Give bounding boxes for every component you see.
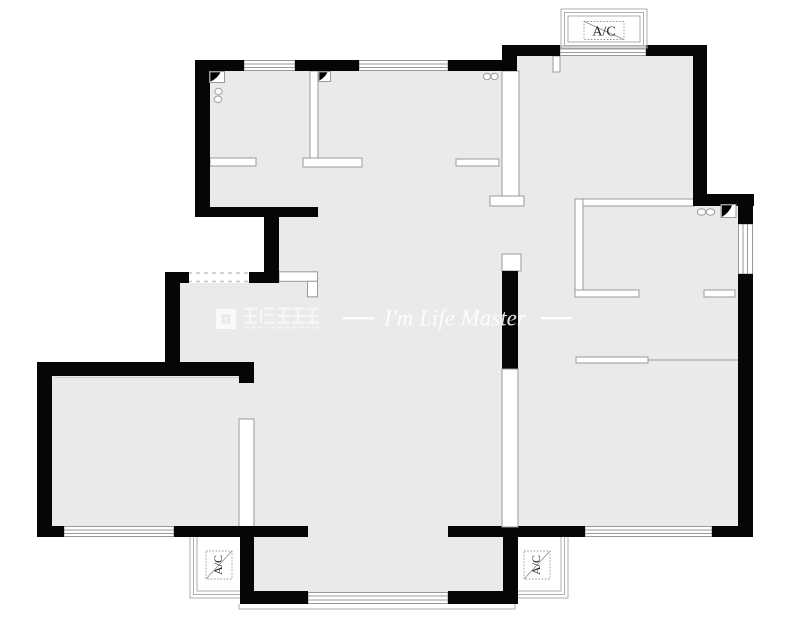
svg-text:A/C: A/C — [592, 25, 615, 40]
svg-text:A/C: A/C — [529, 555, 543, 575]
svg-text:A/C: A/C — [211, 555, 225, 575]
svg-text:I'm Life Master: I'm Life Master — [383, 306, 527, 331]
